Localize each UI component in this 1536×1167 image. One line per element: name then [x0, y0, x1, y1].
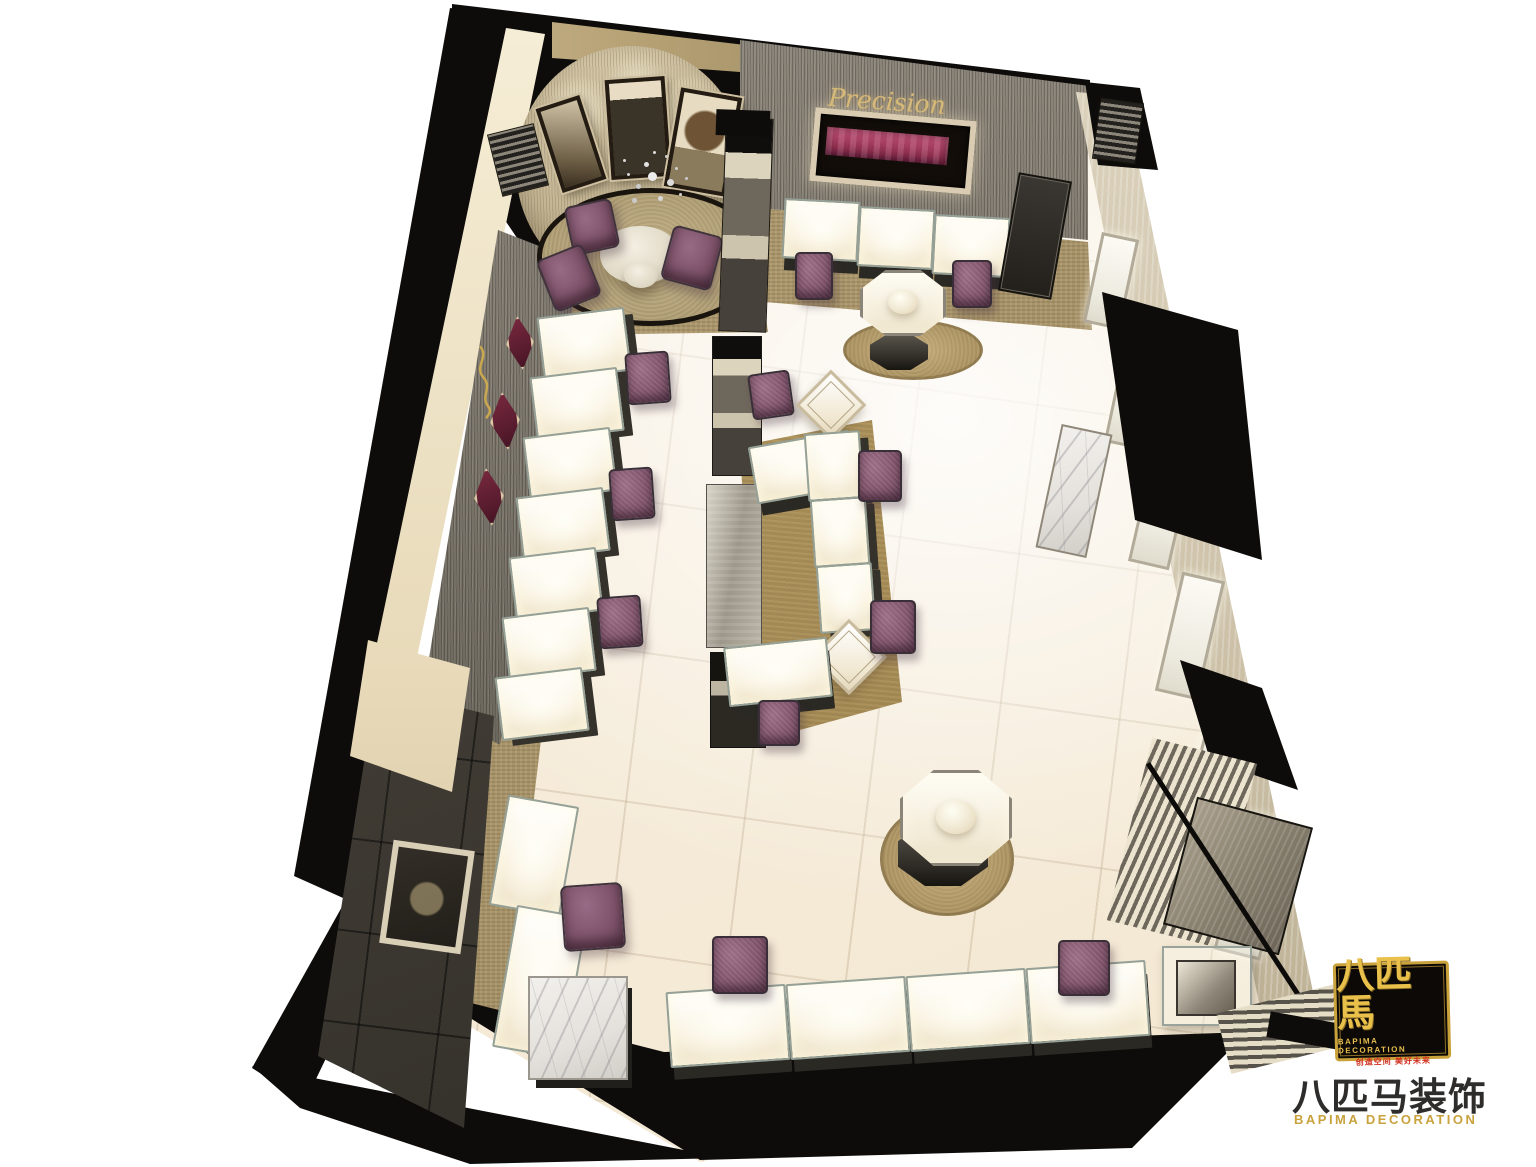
bapima-logo-badge: 八匹馬 BAPIMA DECORATION 创造空间 美好未来 [1333, 960, 1452, 1061]
stool [952, 260, 992, 308]
right-wall-grille [1092, 97, 1144, 165]
stool [795, 252, 833, 300]
display-counter [723, 637, 833, 708]
logo-english-name: BAPIMA DECORATION [1338, 1034, 1448, 1055]
stool [858, 450, 902, 502]
stool [747, 369, 795, 420]
display-counter [905, 968, 1030, 1052]
lounge-table-pedestal [624, 262, 658, 288]
stool [624, 351, 672, 406]
pillar-tower-cap [716, 109, 771, 137]
chair [560, 882, 626, 952]
display-counter [785, 976, 910, 1060]
display-counter [665, 984, 790, 1068]
brand-emblem-panel [379, 840, 475, 954]
watermark-english: BAPIMA DECORATION [1294, 1112, 1477, 1127]
island-tower-showcase [706, 484, 762, 648]
stool [712, 936, 768, 994]
stool [870, 600, 916, 654]
pillar-showcase-tower [718, 117, 773, 333]
stool [758, 700, 800, 746]
display-counter [810, 496, 871, 568]
logo-chinese-name: 八匹馬 [1336, 954, 1448, 1033]
showroom-3d-rendering: Precision [0, 0, 1536, 1167]
octagon-showcase-dome [936, 800, 976, 834]
stool [1058, 940, 1110, 996]
marble-counter [528, 976, 628, 1080]
display-counter [856, 206, 935, 270]
octagon-showcase-dome [888, 290, 918, 314]
sputnik-chandelier-icon [648, 172, 657, 181]
cube-display-block [1176, 960, 1236, 1016]
octagon-showcase-base [870, 334, 928, 370]
stool [608, 467, 656, 522]
display-counter [494, 667, 589, 741]
stool [596, 595, 644, 650]
wall-art-eiffel [605, 76, 672, 180]
display-counter [804, 430, 865, 502]
